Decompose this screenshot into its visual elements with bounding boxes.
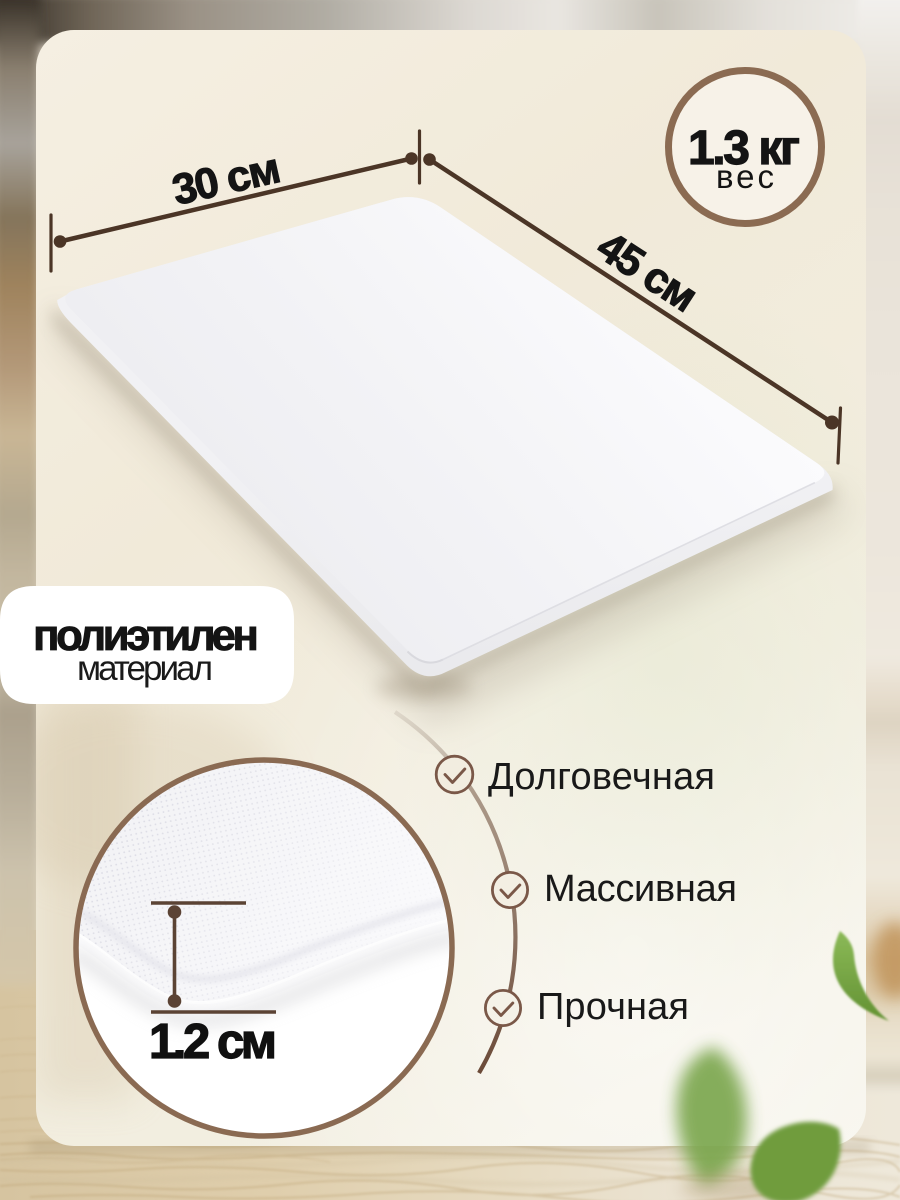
svg-text:Массивная: Массивная: [544, 868, 737, 910]
svg-text:Долговечная: Долговечная: [488, 756, 715, 798]
svg-text:вес: вес: [716, 158, 774, 195]
svg-text:материал: материал: [77, 649, 213, 688]
svg-text:Прочная: Прочная: [537, 986, 689, 1028]
svg-text:1.2 см: 1.2 см: [149, 1015, 277, 1069]
